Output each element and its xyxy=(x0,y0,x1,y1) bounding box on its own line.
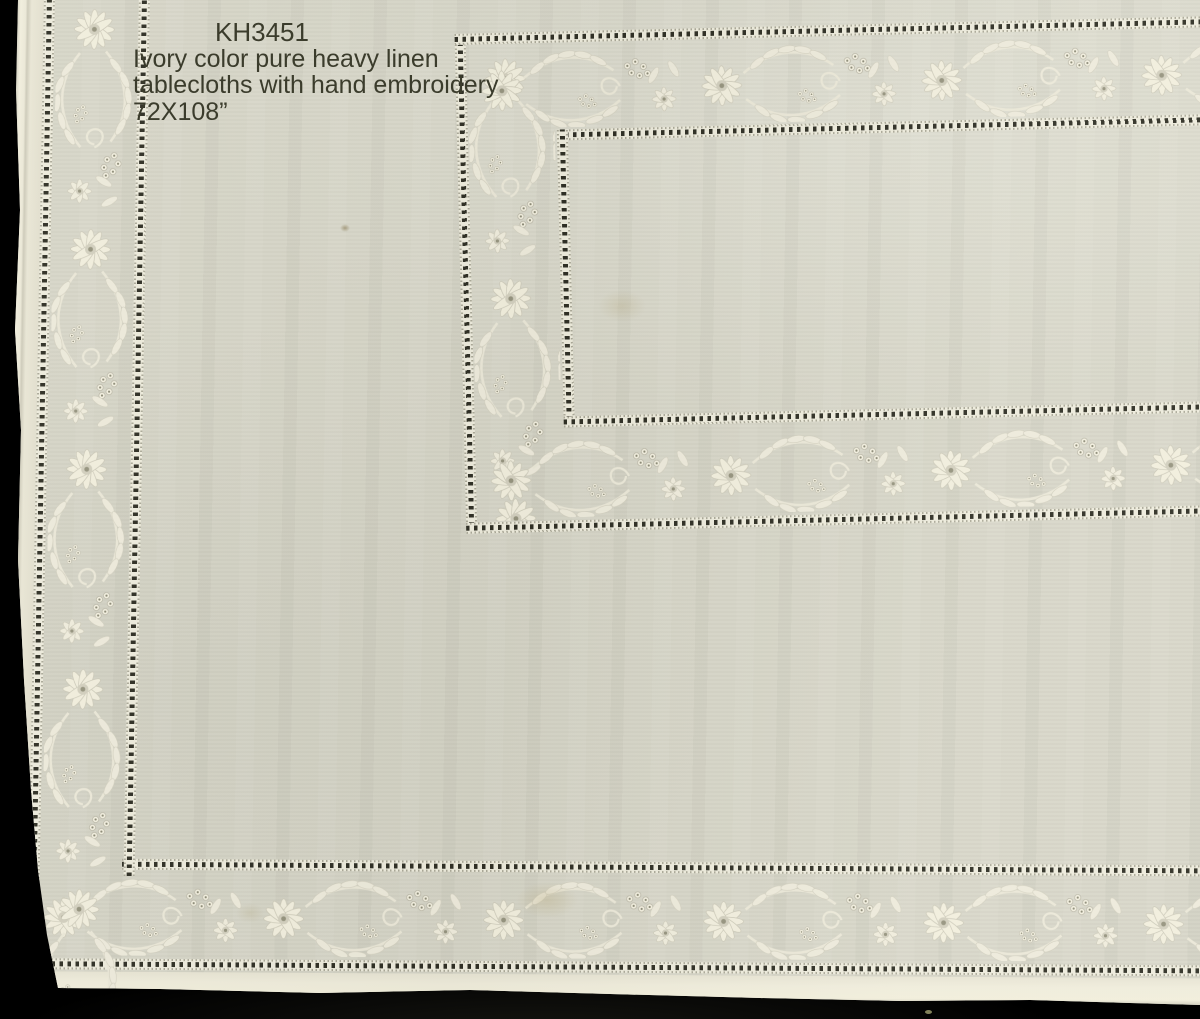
caption: KH3451 Ivory color pure heavy linen tabl… xyxy=(133,19,498,125)
hem-edge xyxy=(7,971,1200,1019)
left-embroidered-border xyxy=(0,0,152,1019)
caption-line-1: Ivory color pure heavy linen xyxy=(133,46,498,73)
tablecloth-fabric xyxy=(0,0,1200,1019)
floral-band xyxy=(39,0,137,1019)
floral-band xyxy=(467,28,1200,130)
bottom-embroidered-border xyxy=(0,850,1200,1019)
floral-band xyxy=(476,418,1200,520)
inner-embroidered-frame xyxy=(452,0,1200,548)
caption-line-3: 72X108” xyxy=(133,99,498,126)
floral-band xyxy=(29,871,1200,962)
caption-line-2: tablecloths with hand embroidery xyxy=(133,72,498,99)
caption-product-code: KH3451 xyxy=(215,19,498,46)
product-photo: KH3451 Ivory color pure heavy linen tabl… xyxy=(0,0,1200,1019)
fabric-stain xyxy=(340,224,350,232)
backdrop-speck xyxy=(925,1010,932,1014)
